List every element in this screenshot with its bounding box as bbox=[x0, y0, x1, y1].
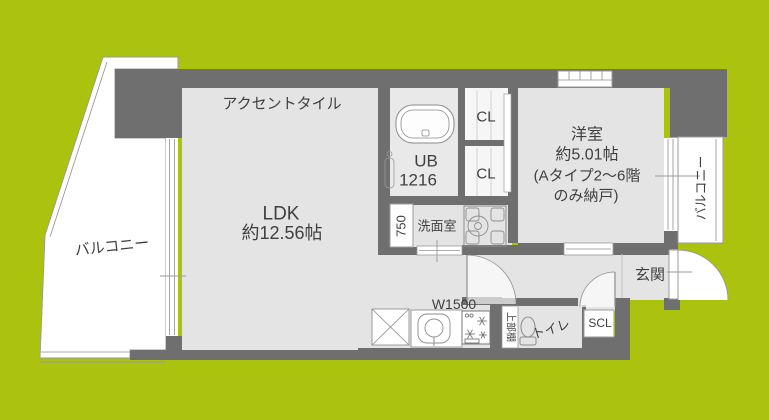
room-western bbox=[518, 88, 664, 243]
label-shoe-closet: SCL bbox=[588, 316, 612, 330]
label-ub-size: 1216 bbox=[399, 171, 437, 190]
label-closet-upper: CL bbox=[476, 109, 495, 126]
label-balcony-right: バルコニー bbox=[694, 156, 709, 221]
label-western-name: 洋室 bbox=[571, 126, 603, 144]
window-western-east bbox=[664, 138, 678, 231]
door-western-sliding bbox=[564, 243, 613, 255]
door-washroom-sliding bbox=[417, 246, 462, 255]
kitchen-sink-icon bbox=[411, 310, 462, 347]
label-kitchen-width: W1500 bbox=[432, 296, 477, 312]
window-western-top-louver bbox=[558, 71, 612, 87]
label-western-note2: のみ納戸) bbox=[554, 188, 619, 205]
label-accent-tile: アクセントタイル bbox=[222, 96, 341, 113]
closet-sliding-band bbox=[504, 94, 511, 192]
label-entrance: 玄関 bbox=[635, 267, 665, 284]
label-closet-lower: CL bbox=[476, 166, 495, 183]
bathtub-icon bbox=[396, 105, 454, 143]
label-western-note1: (Aタイプ2～6階 bbox=[534, 168, 641, 185]
stove-icon bbox=[462, 311, 490, 344]
label-ldk-size: 約12.56帖 bbox=[241, 223, 322, 243]
label-vanity-width: 750 bbox=[394, 215, 409, 237]
label-ub-name: UB bbox=[414, 152, 438, 171]
floor-plan: アクセントタイル LDK 約12.56帖 バルコニー UB 1216 CL CL… bbox=[0, 0, 769, 420]
kitchen-counter bbox=[372, 309, 490, 347]
label-western-size: 約5.01帖 bbox=[555, 146, 618, 164]
label-shelf: 上部棚 bbox=[505, 312, 518, 342]
label-washroom: 洗面室 bbox=[417, 219, 456, 234]
label-ldk-name: LDK bbox=[263, 204, 300, 225]
